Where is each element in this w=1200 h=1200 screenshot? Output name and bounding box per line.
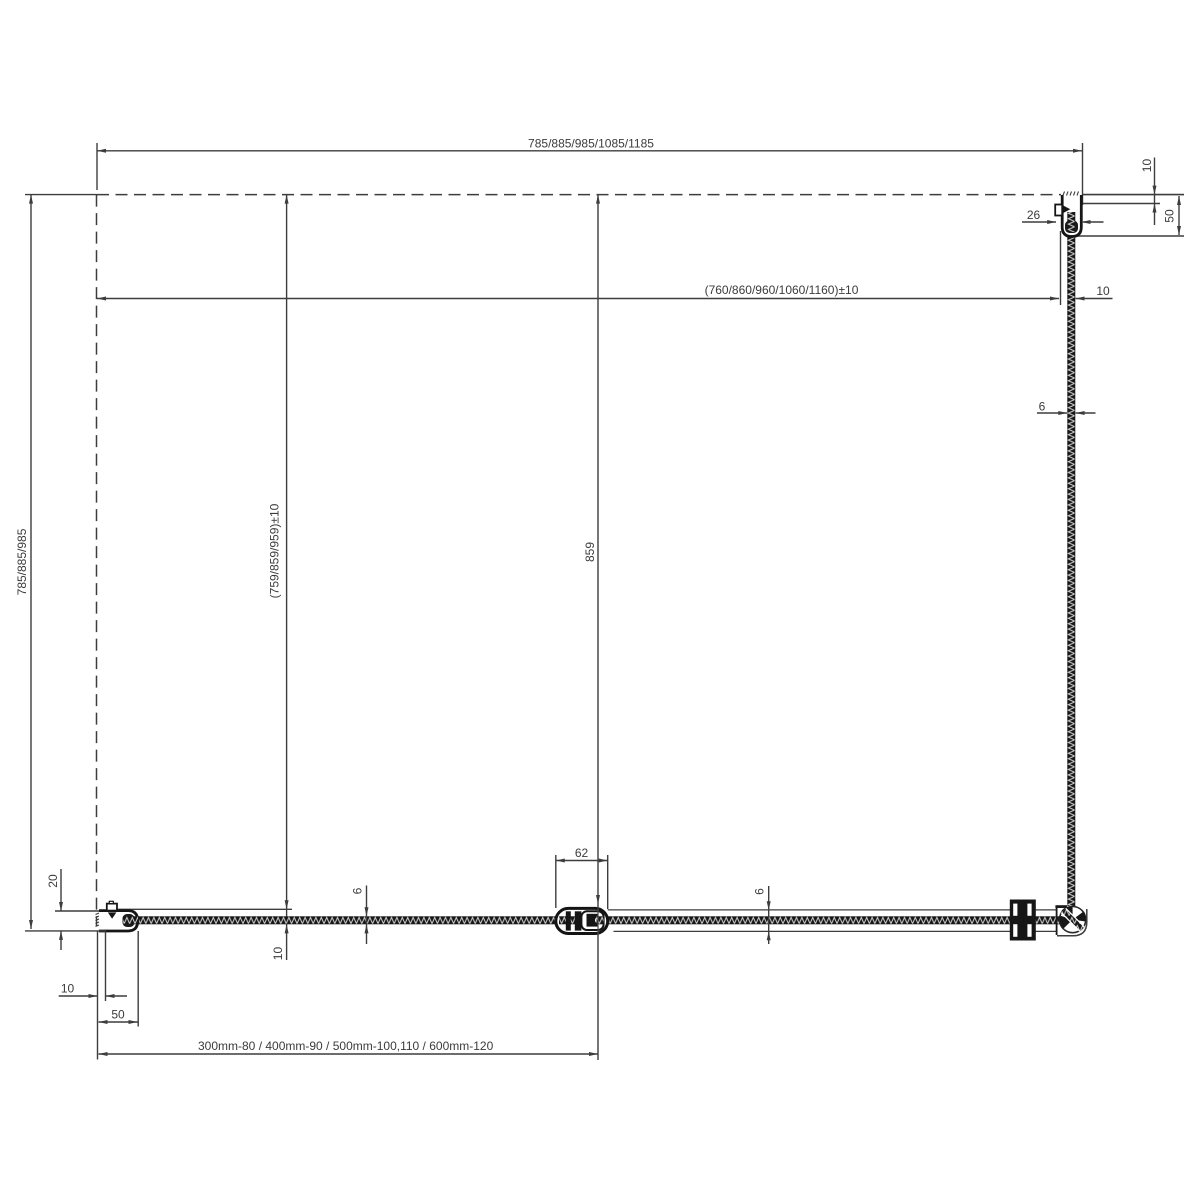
- svg-text:(760/860/960/1060/1160)±10: (760/860/960/1060/1160)±10: [705, 283, 859, 297]
- svg-text:10: 10: [1096, 284, 1110, 298]
- svg-text:785/885/985: 785/885/985: [15, 528, 29, 595]
- svg-text:(759/859/959)±10: (759/859/959)±10: [268, 503, 282, 598]
- svg-text:859: 859: [583, 542, 597, 562]
- svg-text:20: 20: [46, 874, 60, 888]
- svg-text:50: 50: [111, 1008, 125, 1022]
- svg-text:62: 62: [575, 846, 589, 860]
- svg-text:50: 50: [1163, 209, 1177, 223]
- svg-text:300mm-80 / 400mm-90 / 500mm-10: 300mm-80 / 400mm-90 / 500mm-100,110 / 60…: [198, 1039, 494, 1053]
- svg-text:6: 6: [351, 887, 365, 894]
- svg-text:6: 6: [1039, 400, 1046, 414]
- svg-text:10: 10: [1140, 159, 1154, 173]
- svg-text:10: 10: [61, 982, 75, 996]
- svg-text:10: 10: [271, 947, 285, 961]
- svg-text:6: 6: [753, 888, 767, 895]
- svg-text:26: 26: [1027, 208, 1041, 222]
- svg-text:785/885/985/1085/1185: 785/885/985/1085/1185: [528, 137, 654, 151]
